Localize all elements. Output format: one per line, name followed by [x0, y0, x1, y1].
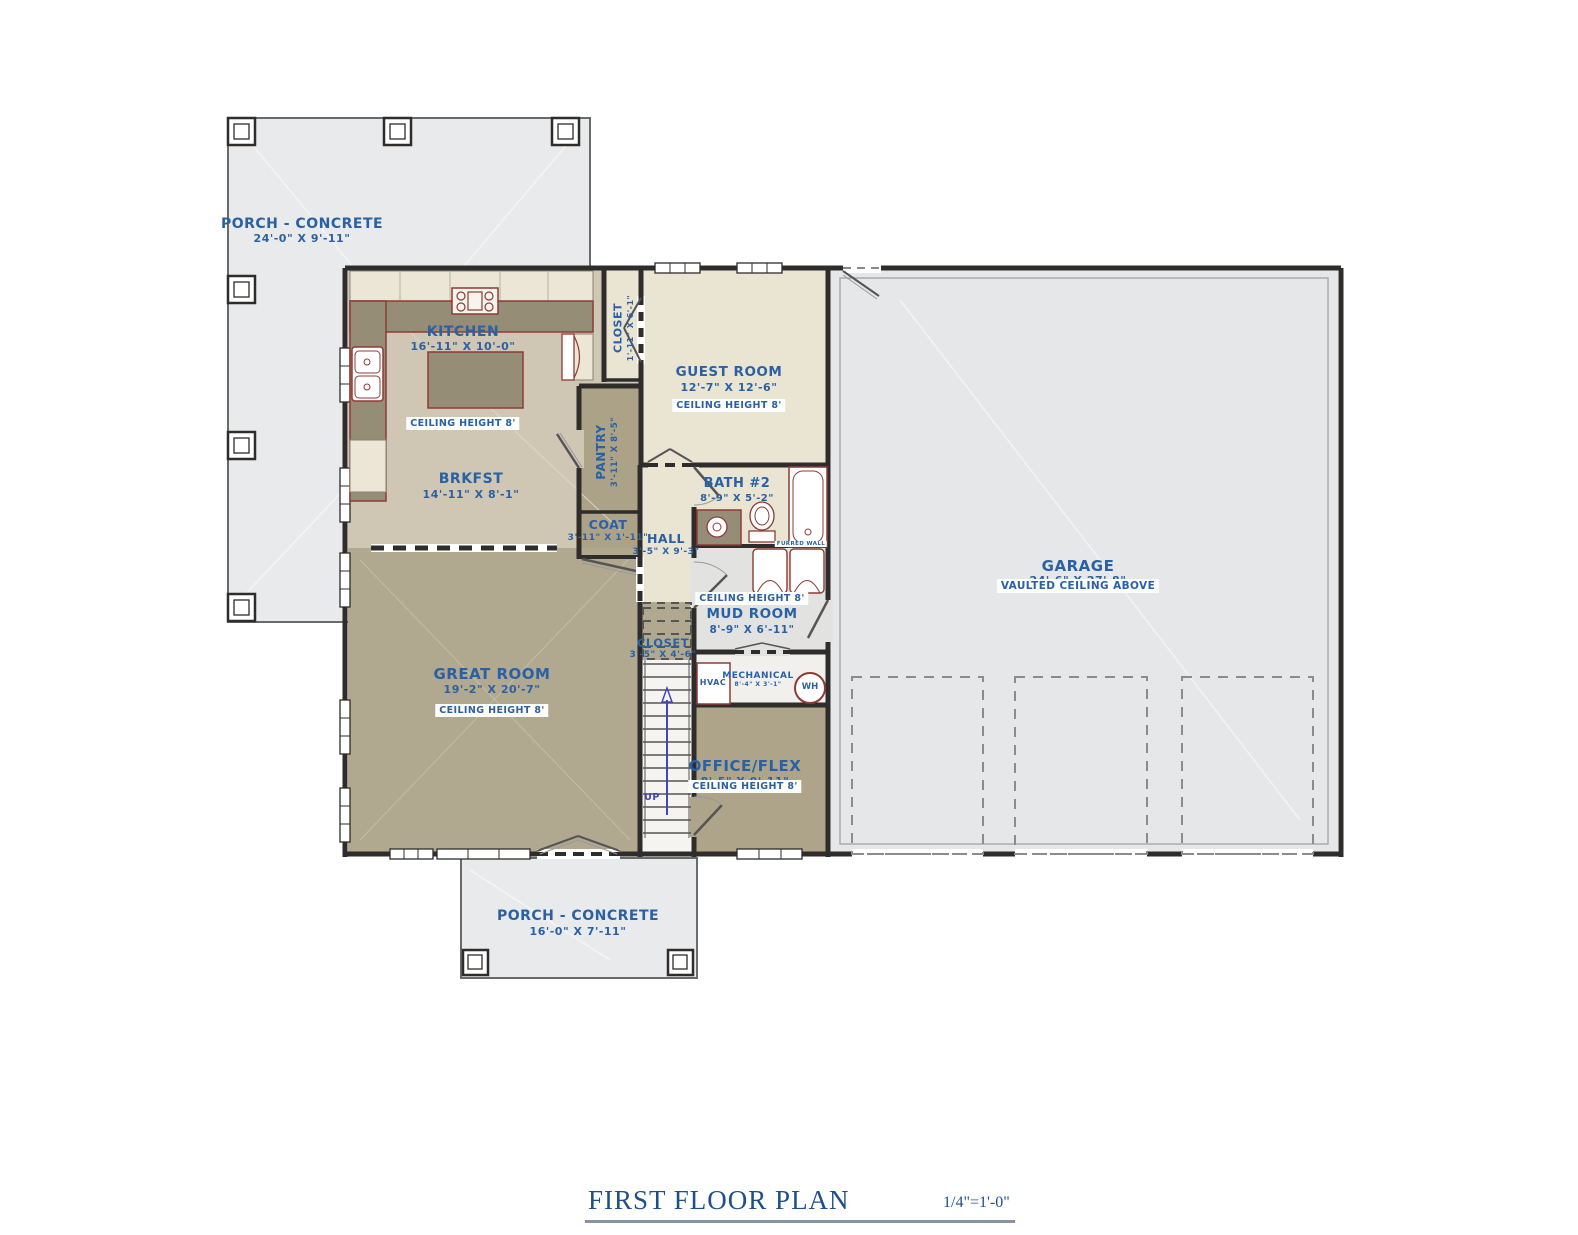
- great-room-ceiling-label: CEILING HEIGHT 8': [435, 704, 548, 717]
- pantry-label: PANTRY: [594, 424, 608, 479]
- furred-wall-label: FURRED WALL: [775, 541, 827, 547]
- guest-room-ceiling-label: CEILING HEIGHT 8': [672, 399, 785, 412]
- floor-plan-page: PORCH - CONCRETE 24'-0" X 9'-11" KITCHEN…: [0, 0, 1578, 1235]
- bath2-label: BATH #2: [704, 477, 771, 492]
- porch-top-label: PORCH - CONCRETE: [221, 216, 383, 232]
- mud-room-label: MUD ROOM: [706, 607, 797, 623]
- porch-bottom-dim: 16'-0" X 7'-11": [530, 926, 627, 939]
- mud-room-dim: 8'-9" X 6'-11": [709, 624, 794, 636]
- hall-dim: 3'-5" X 9'-3": [632, 547, 699, 557]
- closet-kitchen-dim: 1'-11" X 6'-1": [626, 295, 636, 361]
- mud-room-ceiling-label: CEILING HEIGHT 8': [695, 592, 808, 605]
- kitchen-label: KITCHEN: [427, 324, 499, 340]
- guest-room-dim: 12'-7" X 12'-6": [681, 382, 778, 395]
- brkfst-dim: 14'-11" X 8'-1": [423, 489, 520, 502]
- bath2-dim: 8'-9" X 5'-2": [700, 493, 774, 505]
- garage-label: GARAGE: [1042, 558, 1115, 575]
- porch-top-dim: 24'-0" X 9'-11": [254, 233, 351, 246]
- wh-label: WH: [802, 683, 819, 693]
- hall-label: HALL: [647, 532, 685, 546]
- great-room-label: GREAT ROOM: [434, 666, 551, 683]
- brkfst-label: BRKFST: [439, 471, 504, 487]
- porch-bottom-label: PORCH - CONCRETE: [497, 908, 659, 924]
- mechanical-label: MECHANICAL: [722, 671, 793, 681]
- office-label: OFFICE/FLEX: [689, 758, 802, 775]
- pantry-dim: 3'-11" X 8'-5": [610, 417, 620, 487]
- coat-dim: 3'-11" X 1'-11": [568, 533, 649, 543]
- closet-stairs-dim: 3'-5" X 4'-6": [629, 650, 696, 660]
- kitchen-dim: 16'-11" X 10'-0": [410, 341, 515, 354]
- office-ceiling-label: CEILING HEIGHT 8': [688, 780, 801, 793]
- closet-kitchen-label: CLOSET: [611, 303, 624, 353]
- closet-stairs-label: CLOSET: [637, 637, 689, 650]
- sheet-title: FIRST FLOOR PLAN: [588, 1185, 850, 1216]
- garage-note: VAULTED CEILING ABOVE: [997, 579, 1159, 593]
- sheet-scale: 1/4"=1'-0": [943, 1194, 1010, 1212]
- mechanical-dim: 8'-4" X 3'-1": [735, 682, 782, 689]
- guest-room-label: GUEST ROOM: [676, 365, 783, 381]
- great-room-dim: 19'-2" X 20'-7": [444, 684, 541, 697]
- kitchen-ceiling-label: CEILING HEIGHT 8': [406, 417, 519, 430]
- coat-label: COAT: [589, 518, 628, 532]
- stairs-up-label: UP: [644, 793, 660, 804]
- title-underline: [585, 1220, 1015, 1223]
